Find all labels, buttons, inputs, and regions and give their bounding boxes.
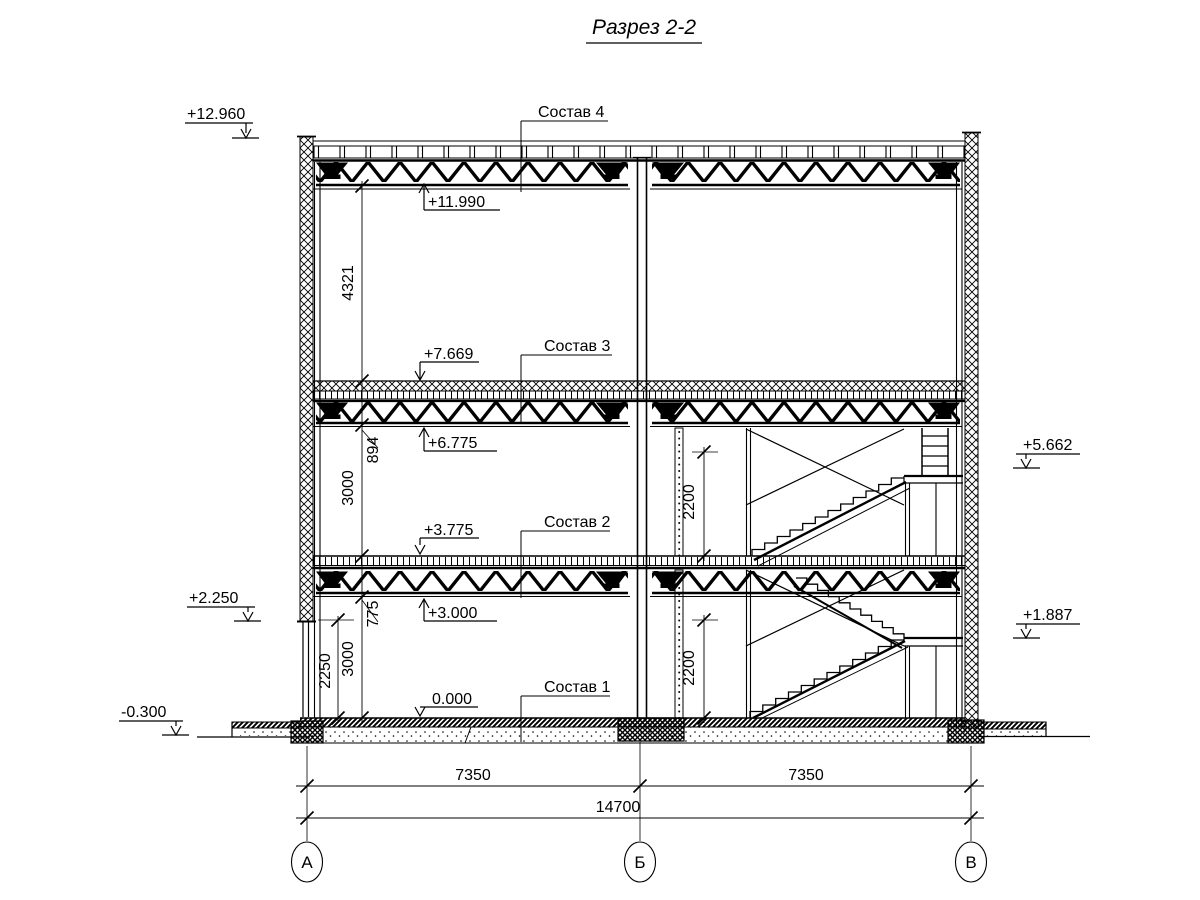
drawing-title: Разрез 2-2 xyxy=(586,16,702,43)
dim-bottom xyxy=(296,742,984,841)
column-axis-b xyxy=(633,158,651,719)
label-floor1-assembly: Состав 1 xyxy=(544,679,610,696)
axis-label-v: В xyxy=(965,853,976,872)
dim-span-right: 7350 xyxy=(788,767,824,784)
stair-handrails-upper xyxy=(746,429,904,505)
elevation-floor3-chord: +6.775 xyxy=(419,428,497,452)
dim-stair-clear-upper: 2200 xyxy=(681,484,698,520)
floor3-truss-left xyxy=(316,402,628,422)
dim-stair-clear-lower: 2200 xyxy=(681,650,698,686)
svg-text:+12.960: +12.960 xyxy=(187,106,245,123)
stair-flight-lower xyxy=(750,640,904,718)
elevation-floor2-top: +3.775 xyxy=(415,522,479,554)
svg-text:+11.990: +11.990 xyxy=(428,194,485,211)
elevation-landing-upper: +5.662 xyxy=(1013,437,1080,468)
dim-story-upper: 3000 xyxy=(340,470,357,506)
assembly-leaders xyxy=(521,121,612,742)
foundation-a xyxy=(291,721,323,743)
dim-floor3-depth: 894 xyxy=(365,437,382,464)
elevation-grade: -0.300 xyxy=(119,704,189,735)
floor2-truss-left xyxy=(316,571,628,591)
stair-landing-lower-platform xyxy=(904,638,963,718)
roof-truss-left xyxy=(316,162,628,182)
building-structure xyxy=(197,133,1090,744)
svg-text:+6.775: +6.775 xyxy=(428,435,477,452)
title-text: Разрез 2-2 xyxy=(592,16,696,39)
label-roof-assembly: Состав 4 xyxy=(538,104,604,121)
floor3-assembly xyxy=(313,381,965,427)
elevation-left-sill: +2.250 xyxy=(187,590,261,621)
drawing-sheet: Разрез 2-2 Состав 4 Состав 3 Состав 2 Со… xyxy=(0,0,1200,900)
column-axis-a xyxy=(315,162,321,718)
svg-text:+7.669: +7.669 xyxy=(424,346,473,363)
blind-area-right xyxy=(978,722,1090,737)
floor2-truss-right xyxy=(652,571,960,591)
svg-text:+2.250: +2.250 xyxy=(189,590,238,607)
wall-left xyxy=(297,137,316,718)
label-floor3-assembly: Состав 3 xyxy=(544,338,610,355)
column-axis-v xyxy=(957,162,963,728)
elevation-landing-lower: +1.887 xyxy=(1013,607,1080,638)
dim-story-lower: 3000 xyxy=(340,641,357,677)
axis-label-b: Б xyxy=(634,853,645,872)
elevation-parapet: +12.960 xyxy=(185,106,259,138)
roof-assembly xyxy=(313,141,965,189)
ground-floor xyxy=(197,718,1090,743)
stair-landing-upper-platform xyxy=(904,476,963,556)
ladder xyxy=(922,428,948,476)
svg-text:0.000: 0.000 xyxy=(432,691,472,708)
foundation-b xyxy=(618,718,684,741)
elevation-roof-chord: +11.990 xyxy=(419,184,500,211)
label-floor2-assembly: Состав 2 xyxy=(544,514,610,531)
section-drawing: Разрез 2-2 Состав 4 Состав 3 Состав 2 Со… xyxy=(0,0,1200,900)
wall-right xyxy=(962,133,981,729)
svg-text:+1.887: +1.887 xyxy=(1023,607,1072,624)
elevation-floor2-chord: +3.000 xyxy=(419,599,497,622)
floor2-assembly xyxy=(313,556,965,597)
dim-span-total: 14700 xyxy=(596,799,641,816)
roof-truss-right xyxy=(652,162,960,182)
window-left xyxy=(303,622,309,717)
dim-span-left: 7350 xyxy=(455,767,491,784)
svg-text:-0.300: -0.300 xyxy=(121,704,166,721)
axis-label-a: А xyxy=(301,853,313,872)
dim-floor2-depth: 775 xyxy=(365,601,382,628)
stair-flight-upper xyxy=(752,478,904,556)
elevation-floor3-top: +7.669 xyxy=(415,346,479,380)
floor3-truss-right xyxy=(652,402,960,422)
dim-attic-height: 4321 xyxy=(340,265,357,301)
dim-sill-height: 2250 xyxy=(317,653,334,689)
grid-axes: А Б В xyxy=(292,842,987,882)
svg-text:+3.775: +3.775 xyxy=(424,522,473,539)
elevation-ground-floor: 0.000 xyxy=(415,691,478,716)
svg-text:+5.662: +5.662 xyxy=(1023,437,1072,454)
svg-text:+3.000: +3.000 xyxy=(428,605,477,622)
